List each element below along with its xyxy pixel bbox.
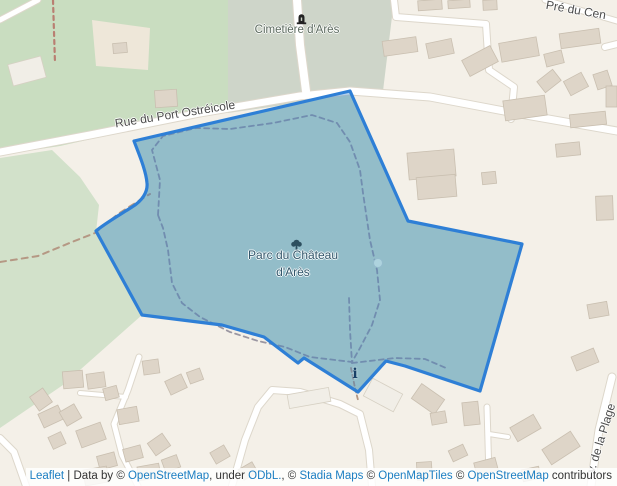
- building: [430, 411, 447, 425]
- building: [483, 0, 498, 10]
- road: [605, 44, 617, 47]
- attribution-text: ©: [363, 470, 378, 482]
- pond: [374, 259, 383, 268]
- map-svg: [0, 0, 617, 486]
- attribution-text: ©: [453, 470, 468, 482]
- attribution-link[interactable]: Leaflet: [30, 470, 65, 482]
- building: [448, 0, 471, 9]
- building: [587, 301, 609, 318]
- building: [418, 0, 443, 11]
- attribution-bar: Leaflet | Data by © OpenStreetMap, under…: [26, 468, 617, 486]
- attribution-text: contributors: [549, 470, 612, 482]
- building: [117, 406, 139, 424]
- building: [62, 370, 83, 389]
- building: [86, 372, 106, 389]
- building: [555, 142, 580, 157]
- building: [416, 174, 457, 199]
- attribution-text: , under: [209, 470, 248, 482]
- building: [154, 89, 177, 107]
- building: [596, 196, 614, 221]
- attribution-text: , ©: [281, 470, 299, 482]
- building: [462, 401, 480, 426]
- attribution-link[interactable]: OpenStreetMap: [468, 470, 549, 482]
- attribution-link[interactable]: OpenMapTiles: [378, 470, 452, 482]
- attribution-link[interactable]: Stadia Maps: [299, 470, 363, 482]
- attribution-text: | Data by ©: [64, 470, 128, 482]
- building: [606, 86, 617, 107]
- building: [481, 171, 496, 184]
- attribution-link[interactable]: ODbL.: [248, 470, 281, 482]
- attribution-link[interactable]: OpenStreetMap: [128, 470, 209, 482]
- info-icon: i: [352, 366, 357, 382]
- building: [142, 359, 160, 375]
- map-canvas[interactable]: Cimetière d'Arès Parc du Château d'Arès …: [0, 0, 617, 486]
- building: [113, 42, 128, 53]
